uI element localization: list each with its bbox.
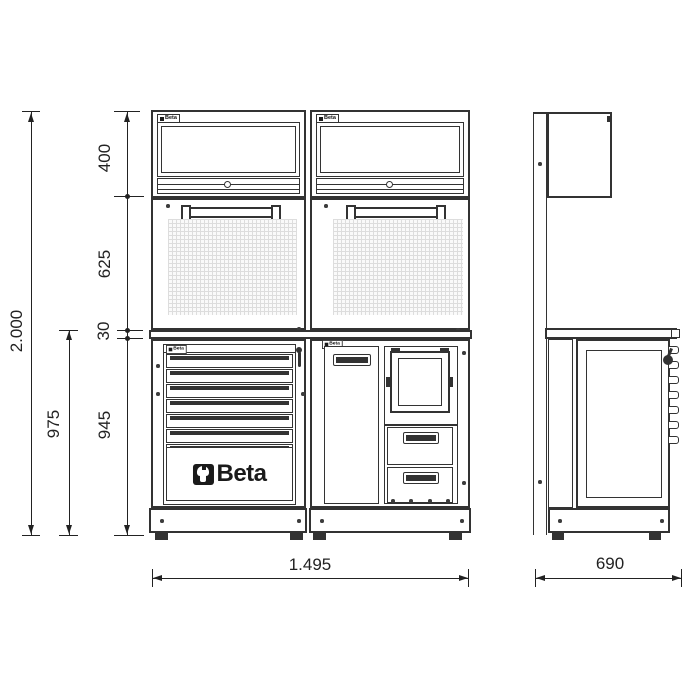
arrowhead xyxy=(28,113,34,122)
arrowhead xyxy=(153,575,162,581)
dimension-label-upper-cabinet: 400 xyxy=(95,126,115,190)
arrowhead xyxy=(66,331,72,340)
extension-tick xyxy=(117,330,143,331)
dimension-label-overall-width: 1.495 xyxy=(265,555,355,575)
dimension-line-total-height xyxy=(31,112,32,535)
chain-dot xyxy=(125,194,130,199)
chain-dot xyxy=(125,336,130,341)
dimension-line-depth xyxy=(535,578,681,579)
dimension-line-chain xyxy=(127,112,128,535)
technical-drawing-canvas: Beta Beta xyxy=(0,0,700,700)
key-head xyxy=(663,355,673,365)
dimension-line-bench-height xyxy=(69,330,70,535)
arrowhead xyxy=(66,525,72,534)
chain-dot xyxy=(125,328,130,333)
worktop-end-cap xyxy=(671,329,680,338)
extension-tick xyxy=(114,111,140,112)
extension-tick xyxy=(59,535,78,536)
extension-tick xyxy=(22,111,40,112)
arrowhead xyxy=(459,575,468,581)
extension-tick xyxy=(22,535,40,536)
worktop-side xyxy=(545,328,677,339)
arrowhead xyxy=(28,525,34,534)
arrowhead xyxy=(536,575,545,581)
dimension-label-depth: 690 xyxy=(565,554,655,574)
arrowhead xyxy=(672,575,681,581)
dimension-label-total-height: 2.000 xyxy=(7,299,27,363)
dimension-label-back-panel: 625 xyxy=(95,232,115,296)
worktop xyxy=(149,330,472,339)
extension-tick xyxy=(117,338,143,339)
arrowhead xyxy=(124,113,130,122)
dimension-label-base-unit: 945 xyxy=(95,393,115,457)
arrowhead xyxy=(124,525,130,534)
dimension-label-worktop: 30 xyxy=(94,299,114,363)
dimensions-layer: 2.000 975 400 625 30 945 1.495 xyxy=(0,0,700,700)
dimension-label-bench-height: 975 xyxy=(44,392,64,456)
extension-tick xyxy=(681,569,682,587)
extension-tick xyxy=(114,535,144,536)
dimension-line-overall-width xyxy=(152,578,468,579)
extension-tick xyxy=(468,569,469,587)
